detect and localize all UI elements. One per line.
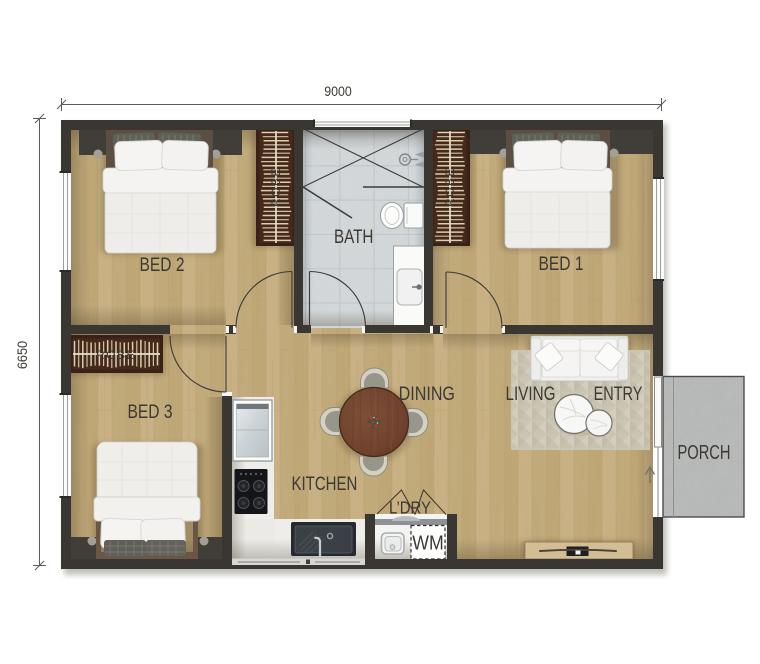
svg-text:BED 2: BED 2 — [140, 254, 185, 276]
svg-text:BED 1: BED 1 — [539, 253, 584, 275]
svg-text:WM: WM — [412, 532, 444, 555]
svg-text:PORCH: PORCH — [678, 442, 731, 464]
svg-text:ROBE: ROBE — [96, 348, 136, 362]
svg-text:6650: 6650 — [14, 341, 30, 369]
svg-text:9000: 9000 — [324, 83, 352, 99]
svg-text:KITCHEN: KITCHEN — [292, 473, 358, 495]
svg-text:DINING: DINING — [399, 383, 455, 405]
svg-text:ENTRY: ENTRY — [594, 383, 643, 405]
svg-text:BED 3: BED 3 — [128, 401, 173, 423]
svg-text:BATH: BATH — [334, 226, 374, 248]
svg-text:ROBE: ROBE — [443, 167, 457, 207]
svg-text:L’DRY: L’DRY — [389, 498, 431, 518]
svg-text:LIVING: LIVING — [506, 383, 556, 405]
svg-text:ROBE: ROBE — [269, 167, 283, 207]
